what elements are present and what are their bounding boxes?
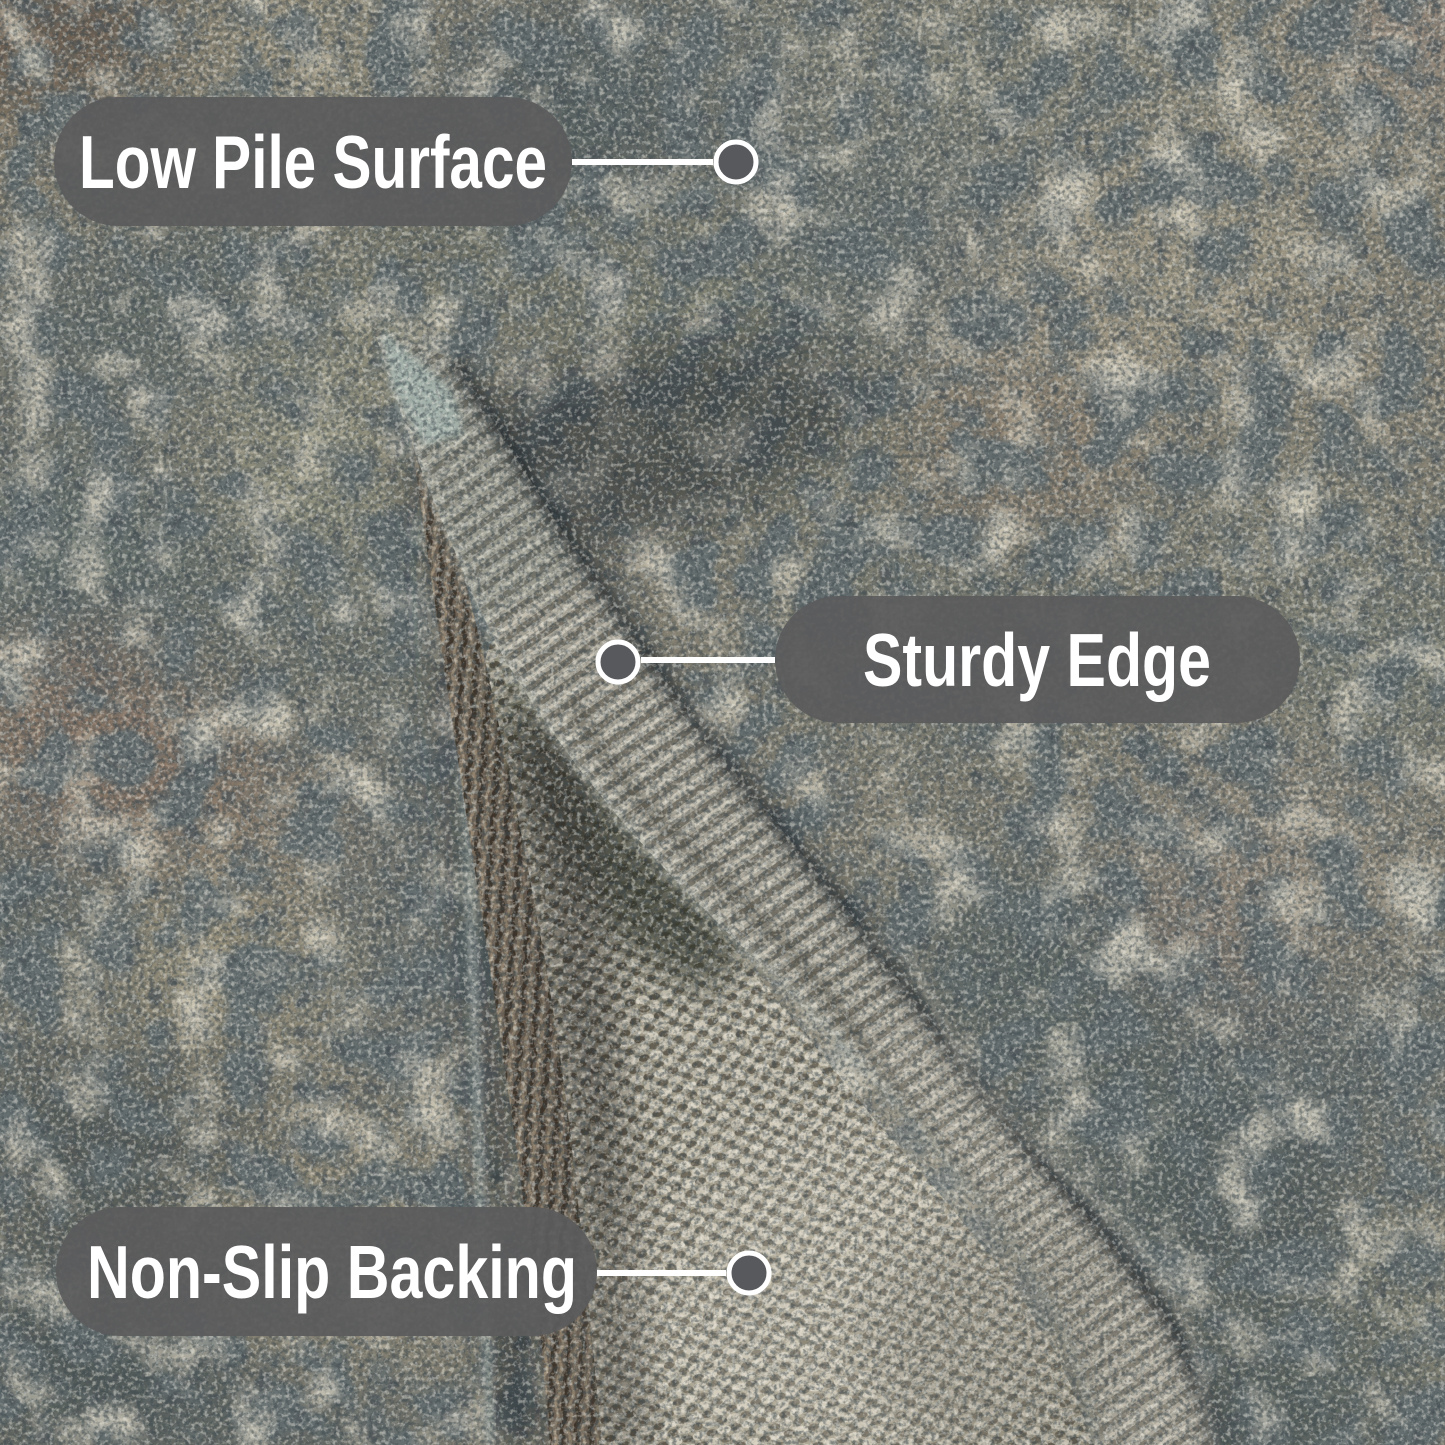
svg-text:Non-Slip Backing: Non-Slip Backing (87, 1230, 577, 1314)
svg-text:Low Pile Surface: Low Pile Surface (79, 120, 547, 204)
svg-text:Sturdy Edge: Sturdy Edge (863, 618, 1211, 702)
